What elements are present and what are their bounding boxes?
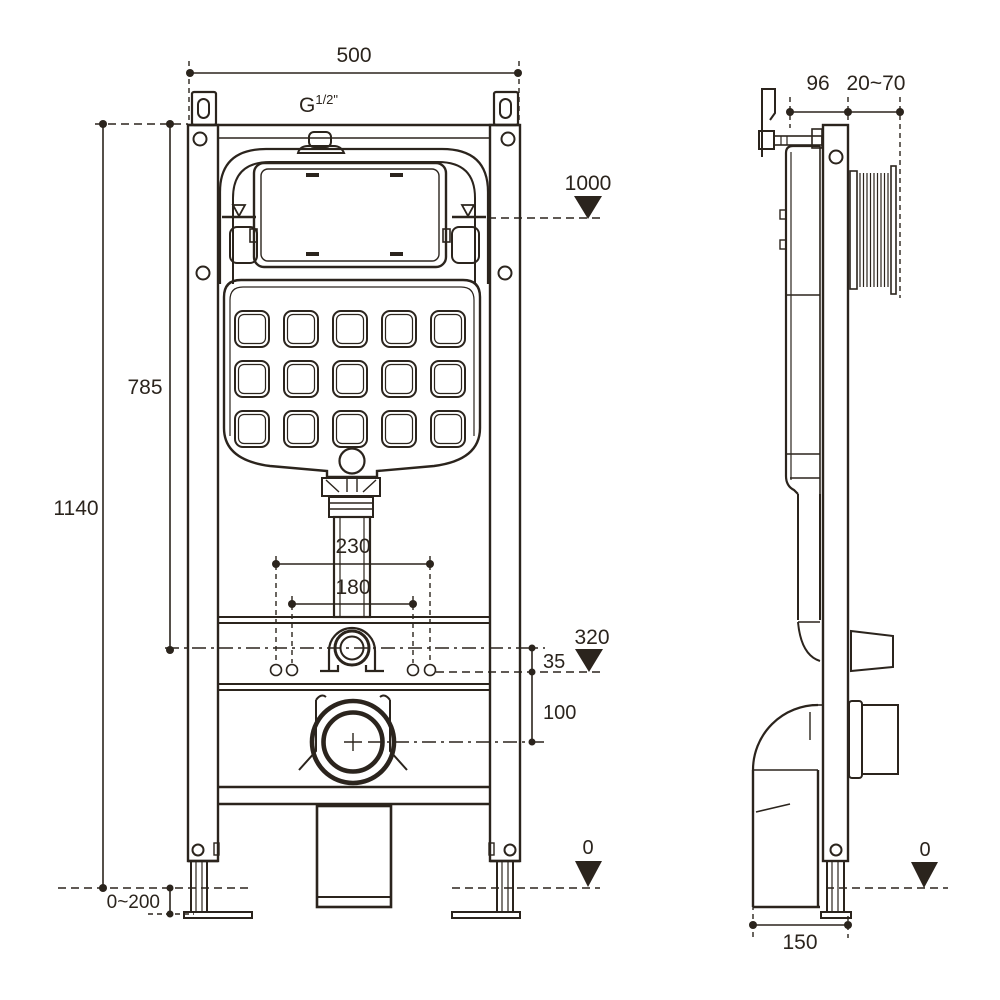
dim-0-200-label: 0~200 xyxy=(107,892,160,913)
level-marker-1000: 1000 xyxy=(488,172,611,219)
inlet-thread-label: G1/2" xyxy=(299,92,338,117)
dimension-0-200: 0~200 xyxy=(107,885,194,918)
dimension-height-785: 785 xyxy=(127,120,174,654)
dim-35-label: 35 xyxy=(543,651,565,673)
waste-outlet xyxy=(299,696,545,783)
dim-100-label: 100 xyxy=(543,702,576,724)
adjustable-foot-right xyxy=(452,861,520,918)
frame-rail-left xyxy=(188,125,218,861)
dimension-height-1140: 1140 xyxy=(53,120,188,892)
side-waste-elbow xyxy=(753,705,823,907)
technical-drawing: 500 1140 785 G1/2" xyxy=(0,0,1000,1000)
dim-150-label: 150 xyxy=(782,931,817,954)
dim-230-label: 230 xyxy=(335,535,370,558)
tank-drain-hole xyxy=(340,449,365,474)
side-tank xyxy=(780,146,820,494)
level-0-side-label: 0 xyxy=(919,839,930,861)
level-0-front-label: 0 xyxy=(582,837,593,859)
top-tab-right xyxy=(494,92,518,125)
top-tab-left xyxy=(192,92,216,125)
dimension-100: 100 xyxy=(529,672,577,746)
dim-20-70-label: 20~70 xyxy=(847,72,906,95)
dim-1140-label: 1140 xyxy=(53,497,98,520)
inlet-cap xyxy=(309,132,331,147)
level-1000-label: 1000 xyxy=(565,172,612,195)
dimension-width-500: 500 xyxy=(186,44,522,122)
dim-500-label: 500 xyxy=(336,44,371,67)
level-marker-320: 320 xyxy=(436,626,610,672)
access-panel xyxy=(250,163,450,267)
dimension-180: 180 xyxy=(288,576,417,663)
pipe-clamp xyxy=(165,628,545,671)
side-view: 96 20~70 xyxy=(749,72,948,954)
inlet-stub xyxy=(851,631,893,671)
dimension-230: 230 xyxy=(272,535,434,663)
front-view: 500 1140 785 G1/2" xyxy=(53,44,611,918)
dimension-35: 35 xyxy=(529,645,566,676)
wall-spacer-corrugation xyxy=(850,166,896,294)
dim-180-label: 180 xyxy=(335,576,370,599)
frame-rail-right xyxy=(490,125,520,861)
level-marker-0-front: 0 xyxy=(575,837,602,887)
adjustable-foot-left xyxy=(184,861,252,918)
tank-grid xyxy=(235,311,465,447)
side-rail xyxy=(821,125,851,918)
dim-785-label: 785 xyxy=(127,376,162,399)
level-320-label: 320 xyxy=(574,626,609,649)
dim-96-label: 96 xyxy=(806,72,829,95)
outlet-stub xyxy=(849,701,898,778)
side-flush-pipe xyxy=(798,494,820,661)
bottom-duct xyxy=(317,806,391,907)
